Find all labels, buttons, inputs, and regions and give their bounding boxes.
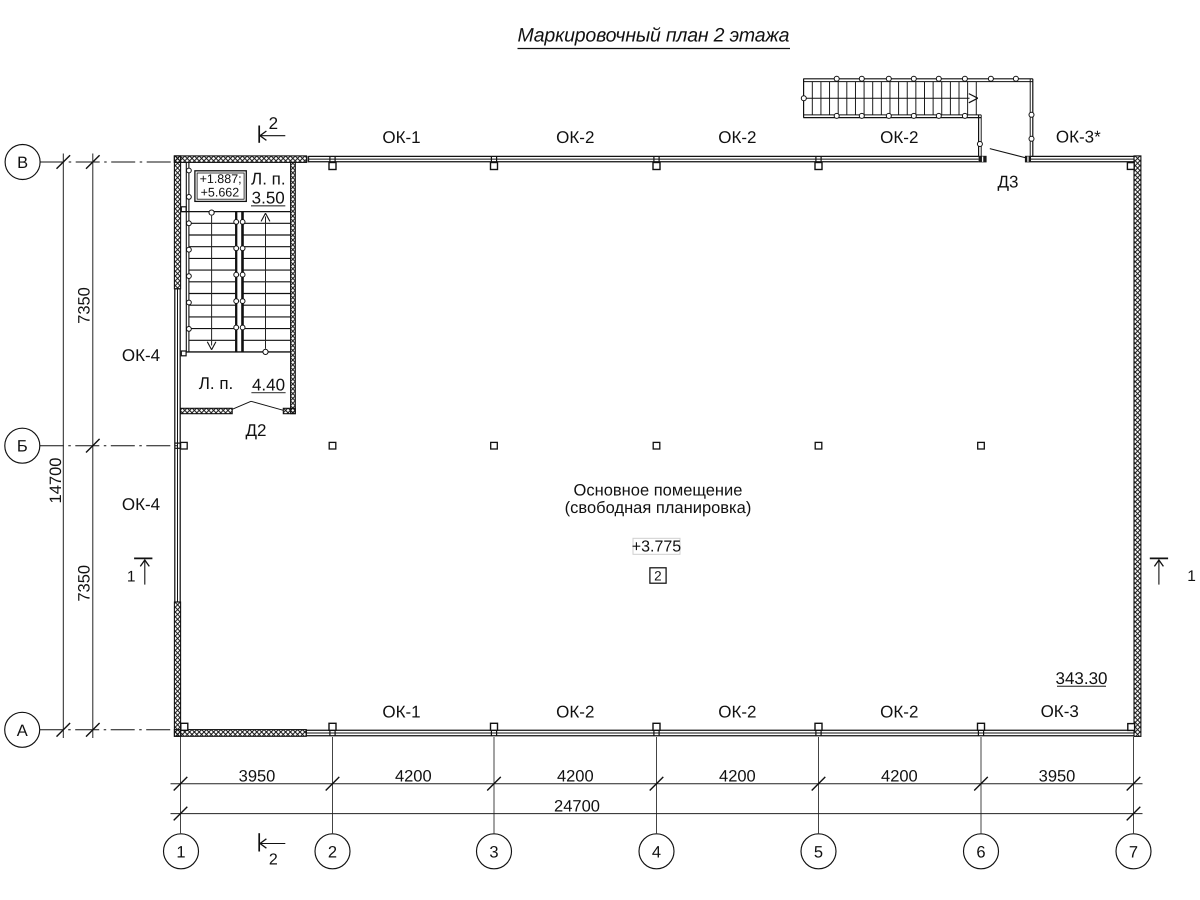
svg-text:+5.662: +5.662 bbox=[201, 185, 240, 199]
svg-text:24700: 24700 bbox=[554, 798, 600, 816]
svg-text:+3.775: +3.775 bbox=[632, 538, 681, 555]
svg-text:В: В bbox=[17, 154, 28, 172]
svg-text:Л. п.: Л. п. bbox=[199, 374, 234, 393]
svg-text:Маркировочный план 2 этажа: Маркировочный план 2 этажа bbox=[518, 25, 790, 47]
svg-text:2: 2 bbox=[654, 568, 662, 583]
svg-text:(свободная планировка): (свободная планировка) bbox=[565, 499, 752, 517]
svg-text:1: 1 bbox=[127, 568, 136, 585]
svg-text:ОК-2: ОК-2 bbox=[718, 128, 756, 147]
svg-text:1: 1 bbox=[176, 843, 185, 861]
svg-text:7350: 7350 bbox=[75, 565, 93, 602]
svg-text:2: 2 bbox=[269, 851, 278, 868]
svg-text:Основное помещение: Основное помещение bbox=[574, 482, 743, 500]
svg-text:ОК-4: ОК-4 bbox=[122, 346, 160, 365]
svg-text:ОК-2: ОК-2 bbox=[556, 128, 594, 147]
svg-text:ОК-3: ОК-3 bbox=[1041, 702, 1079, 721]
svg-text:ОК-3*: ОК-3* bbox=[1056, 127, 1101, 146]
svg-text:Л. п.: Л. п. bbox=[251, 169, 286, 188]
svg-text:А: А bbox=[17, 722, 28, 740]
svg-text:+1.887;: +1.887; bbox=[200, 172, 242, 186]
svg-text:ОК-1: ОК-1 bbox=[382, 128, 420, 147]
svg-text:4200: 4200 bbox=[557, 768, 594, 786]
svg-text:Д3: Д3 bbox=[998, 173, 1019, 192]
svg-text:2: 2 bbox=[269, 114, 278, 133]
svg-text:ОК-2: ОК-2 bbox=[880, 128, 918, 147]
svg-text:ОК-2: ОК-2 bbox=[880, 703, 918, 722]
svg-text:7: 7 bbox=[1129, 843, 1138, 861]
svg-text:1: 1 bbox=[1187, 568, 1196, 585]
svg-text:4: 4 bbox=[652, 843, 661, 861]
svg-text:ОК-2: ОК-2 bbox=[718, 703, 756, 722]
svg-text:3950: 3950 bbox=[1039, 768, 1076, 786]
svg-text:ОК-4: ОК-4 bbox=[122, 495, 160, 514]
svg-text:ОК-1: ОК-1 bbox=[382, 703, 420, 722]
svg-text:4200: 4200 bbox=[719, 768, 756, 786]
svg-text:7350: 7350 bbox=[75, 287, 93, 324]
svg-text:343.30: 343.30 bbox=[1056, 669, 1108, 688]
svg-text:3: 3 bbox=[489, 843, 498, 861]
svg-text:4200: 4200 bbox=[881, 768, 918, 786]
svg-text:6: 6 bbox=[976, 843, 985, 861]
svg-text:4200: 4200 bbox=[395, 768, 432, 786]
svg-text:4.40: 4.40 bbox=[252, 376, 285, 395]
svg-text:14700: 14700 bbox=[47, 458, 65, 504]
svg-text:3.50: 3.50 bbox=[252, 188, 285, 207]
svg-text:Б: Б bbox=[17, 438, 28, 456]
svg-text:ОК-2: ОК-2 bbox=[556, 703, 594, 722]
svg-text:2: 2 bbox=[328, 843, 337, 861]
svg-text:3950: 3950 bbox=[239, 768, 276, 786]
svg-text:5: 5 bbox=[814, 843, 823, 861]
svg-text:Д2: Д2 bbox=[246, 421, 267, 440]
